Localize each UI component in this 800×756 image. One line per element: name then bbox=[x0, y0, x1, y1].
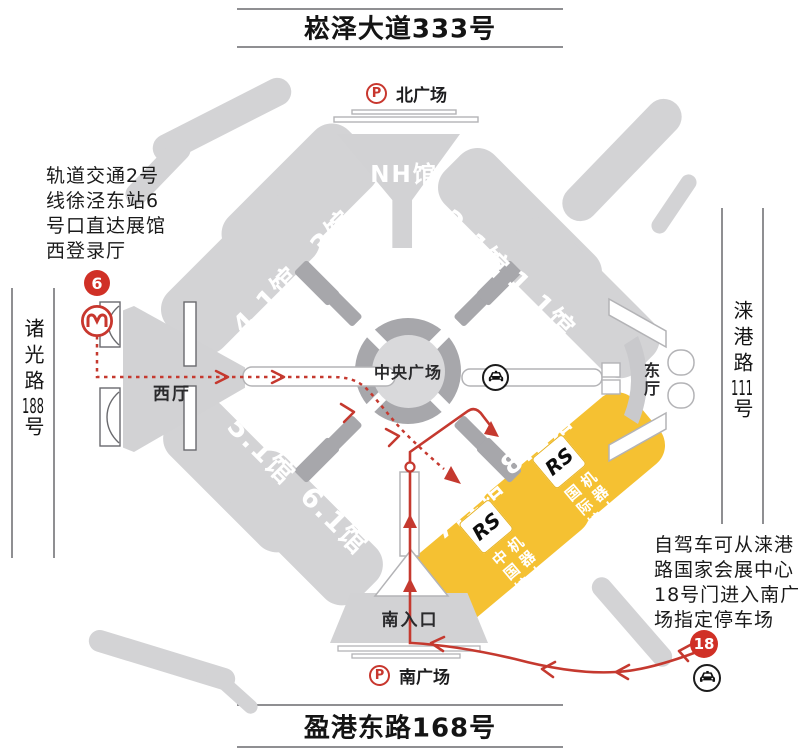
gate-18-badge: 18 bbox=[690, 630, 718, 658]
parking-icon: P bbox=[366, 83, 387, 104]
north-plaza: P 北广场 bbox=[366, 81, 447, 106]
hall-nh-label: NH馆 bbox=[370, 155, 438, 189]
shanghai-metro-icon bbox=[80, 304, 114, 338]
car-icon bbox=[482, 364, 509, 391]
south-entrance-label: 南入口 bbox=[382, 606, 439, 631]
metro-exit-badge: 6 bbox=[84, 270, 110, 296]
drive-access-note: 自驾车可从涞港 路国家会展中心 18号门进入南广 场指定停车场 bbox=[654, 533, 800, 633]
metro-access-note: 轨道交通2号 线徐泾东站6 号口直达展馆 西登录厅 bbox=[46, 164, 202, 264]
south-plaza: P 南广场 bbox=[369, 663, 450, 688]
parking-icon: P bbox=[369, 665, 390, 686]
central-plaza-label: 中央广场 bbox=[374, 359, 442, 383]
car-icon bbox=[693, 664, 721, 692]
venue-map: 崧泽大道333号 盈港东路168号 诸光路188号 涞港路111号 bbox=[0, 0, 800, 756]
east-hall-label: 东厅 bbox=[638, 362, 662, 398]
west-hall-label: 西厅 bbox=[153, 380, 191, 405]
north-plaza-label: 北广场 bbox=[396, 81, 447, 106]
south-plaza-label: 南广场 bbox=[399, 663, 450, 688]
